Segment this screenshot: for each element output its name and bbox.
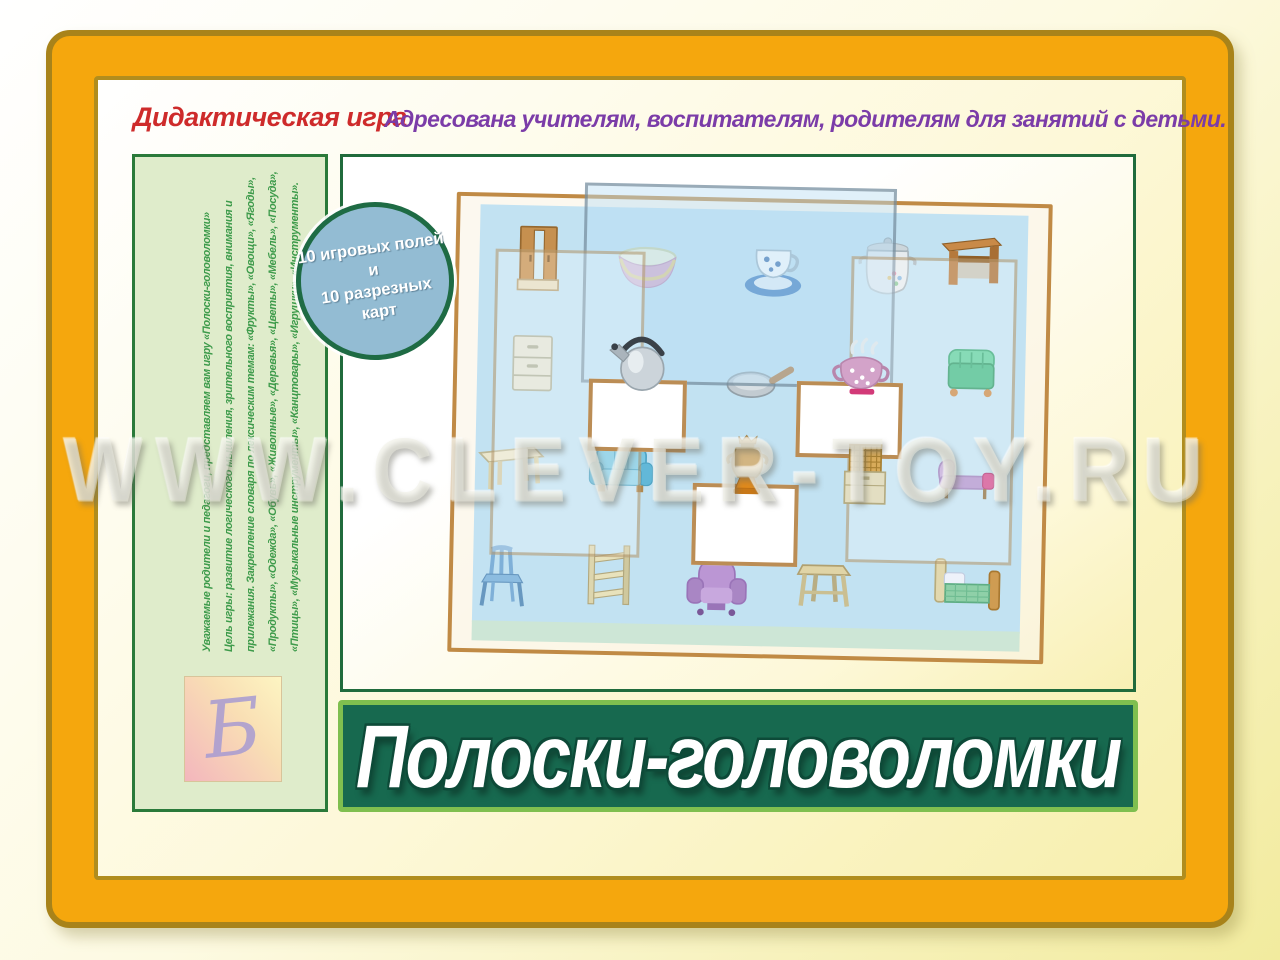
sidebar-text-line: Уважаемые родители и педагоги, представл… — [196, 177, 218, 652]
publisher-logo: Б — [184, 676, 282, 782]
title-banner: Полоски-головоломки — [338, 700, 1138, 812]
header-game-type-label: Дидактическая игра — [133, 102, 407, 133]
badge-line2: 10 разрезных карт — [320, 274, 433, 323]
badge-line1: 10 игровых полей и — [296, 229, 444, 279]
sidebar-text-line: «Продукты», «Одежда», «Обувь», «Животные… — [262, 177, 284, 652]
kettle-icon — [603, 323, 680, 397]
samovar-icon — [708, 429, 785, 503]
sidebar-text-line: прилежания. Закрепление словаря по лекси… — [240, 177, 262, 652]
game-box-cover: Дидактическая игра Адресована учителям, … — [0, 0, 1280, 960]
publisher-logo-letter: Б — [200, 687, 265, 771]
sidebar-vertical-text: Уважаемые родители и педагоги, представл… — [196, 177, 311, 652]
contents-badge-text: 10 игровых полей и 10 разрезных карт — [296, 228, 454, 334]
game-board-preview — [447, 192, 1053, 664]
header-audience-text: Адресована учителям, воспитателям, родит… — [384, 106, 1226, 133]
sidebar-text-line: Цель игры: развитие логического мышления… — [218, 177, 240, 652]
cabinet-icon — [826, 440, 903, 514]
game-title: Полоски-головоломки — [356, 705, 1120, 807]
teapot-icon — [823, 330, 900, 404]
